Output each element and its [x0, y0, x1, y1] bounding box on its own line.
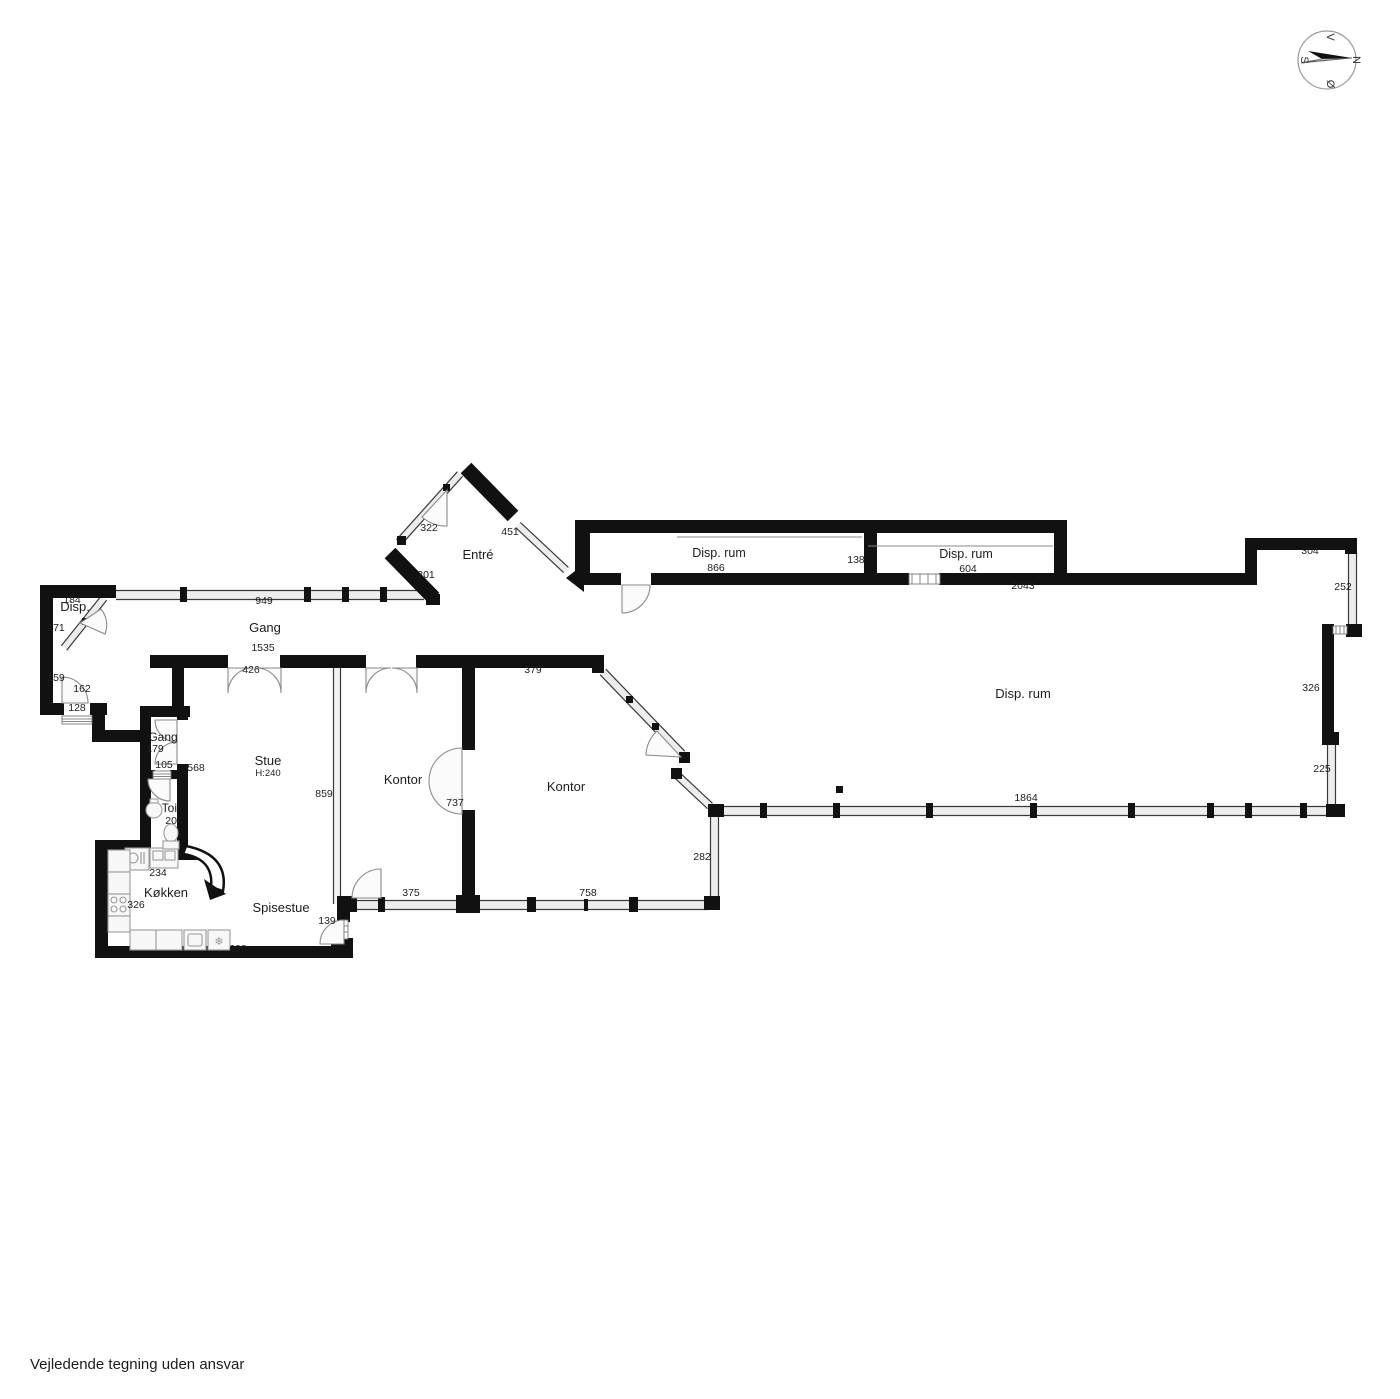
- dimension-label: 225: [1313, 763, 1331, 775]
- room-label-gang-corridor: Gang: [249, 620, 281, 635]
- dimension-labels: 1841711591621289491535426322451201866138…: [47, 522, 1352, 955]
- room-label-disp-rum-1: Disp. rum: [692, 546, 745, 560]
- compass-letter-left: S: [1298, 56, 1310, 63]
- dimension-label: 171: [47, 622, 65, 634]
- room-label-disp-rum-big: Disp. rum: [995, 686, 1051, 701]
- room-label-entre: Entré: [462, 547, 493, 562]
- dimension-label: 2043: [1011, 580, 1035, 592]
- dimension-label: 1864: [1014, 792, 1038, 804]
- washbasin-icon: [146, 802, 162, 818]
- floorplan-drawing: ❄ VNSØ Disp.GangEntréDisp. rumDisp. rum: [0, 0, 1400, 1399]
- dimension-label: 252: [1334, 581, 1352, 593]
- dimension-label: 426: [242, 664, 260, 676]
- compass-letter-right: N: [1350, 56, 1362, 64]
- dimension-label: 322: [420, 522, 438, 534]
- curved-wall: [183, 846, 224, 891]
- compass: VNSØ: [1298, 31, 1362, 89]
- dimension-label: 128: [68, 702, 86, 714]
- compass-letter-bottom: Ø: [1324, 80, 1336, 89]
- room-label-gang-small: Gang: [148, 730, 177, 744]
- compass-letter-top: V: [1324, 33, 1336, 41]
- room-label-stue: Stue: [255, 753, 282, 768]
- dimension-label: 234: [149, 867, 167, 879]
- room-label-kokken: Køkken: [144, 885, 188, 900]
- dimension-label: 184: [63, 594, 81, 606]
- dimension-label: 201: [417, 569, 435, 581]
- window-posts: [180, 587, 1307, 913]
- dimension-label: 282: [693, 851, 711, 863]
- dimension-label: 105: [155, 759, 173, 771]
- dimension-label: 866: [707, 562, 725, 574]
- room-label-kontor-2: Kontor: [547, 779, 586, 794]
- dimension-label: 737: [446, 797, 464, 809]
- dimension-label: 375: [402, 887, 420, 899]
- dimension-label: 326: [127, 899, 145, 911]
- dimension-label: 139: [318, 915, 336, 927]
- dimension-label: 698: [229, 943, 247, 955]
- dimension-label: 162: [73, 683, 91, 695]
- dimension-label: 859: [315, 788, 333, 800]
- dimension-label: 179: [146, 743, 164, 755]
- dimension-label: 204: [165, 815, 183, 827]
- room-height-label-stue: H:240: [255, 768, 280, 779]
- dimension-label: 159: [47, 672, 65, 684]
- dimension-label: 568: [187, 762, 205, 774]
- dimension-label: 1535: [251, 642, 275, 654]
- room-label-spisestue: Spisestue: [252, 900, 309, 915]
- room-label-kontor-1: Kontor: [384, 772, 423, 787]
- dimension-label: 604: [959, 563, 977, 575]
- compass-needle: [1308, 51, 1352, 59]
- floorplan-page: ❄ VNSØ Disp.GangEntréDisp. rumDisp. rum: [0, 0, 1400, 1399]
- dimension-label: 379: [524, 664, 542, 676]
- column-dot: [836, 786, 843, 793]
- dimension-label: 451: [501, 526, 519, 538]
- dimension-label: 326: [1302, 682, 1320, 694]
- room-label-toi: Toi.: [162, 801, 181, 815]
- dimension-label: 304: [1301, 545, 1319, 557]
- disclaimer-text: Vejledende tegning uden ansvar: [30, 1356, 244, 1373]
- room-label-disp-rum-2: Disp. rum: [939, 547, 992, 561]
- dimension-label: 758: [579, 887, 597, 899]
- walls: [40, 468, 1362, 958]
- snowflake-icon: ❄: [214, 936, 223, 948]
- dimension-label: 949: [255, 595, 273, 607]
- dimension-label: 138: [847, 554, 865, 566]
